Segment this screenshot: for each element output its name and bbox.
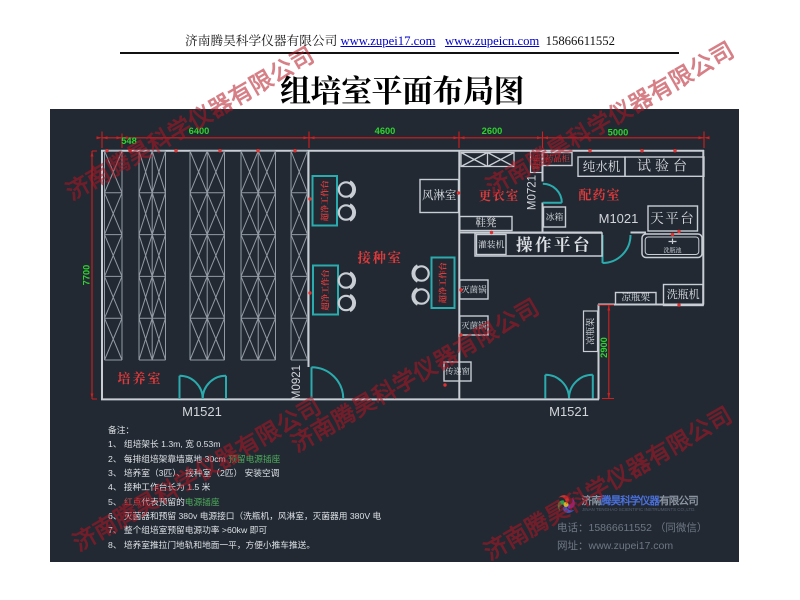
svg-text:操作平台: 操作平台: [516, 235, 592, 255]
svg-text:冰箱: 冰箱: [546, 211, 564, 222]
svg-text:M1521: M1521: [549, 404, 589, 419]
svg-text:M1021: M1021: [599, 211, 639, 226]
svg-text:风淋室: 风淋室: [422, 188, 457, 202]
svg-text:纯水机: 纯水机: [583, 159, 621, 174]
svg-text:M1521: M1521: [182, 404, 222, 419]
svg-text:超净工作台: 超净工作台: [320, 269, 330, 311]
svg-text:天平台: 天平台: [650, 211, 695, 226]
svg-text:2600: 2600: [482, 126, 503, 136]
svg-text:接种室: 接种室: [358, 250, 403, 266]
svg-text:7700: 7700: [82, 265, 92, 286]
svg-text:凉瓶架: 凉瓶架: [622, 292, 651, 304]
svg-text:4600: 4600: [375, 126, 396, 136]
svg-text:配药室: 配药室: [578, 188, 620, 203]
svg-text:灌装机: 灌装机: [478, 239, 505, 250]
svg-text:超净工作台: 超净工作台: [438, 261, 448, 303]
svg-text:2900: 2900: [599, 337, 609, 358]
svg-text:凉瓶架: 凉瓶架: [585, 318, 596, 345]
svg-text:洗瓶机: 洗瓶机: [667, 287, 700, 301]
svg-text:超净工作台: 超净工作台: [319, 179, 329, 221]
svg-text:灭菌锅: 灭菌锅: [461, 285, 487, 295]
svg-text:试验台: 试验台: [637, 159, 691, 175]
svg-text:洗瓶池: 洗瓶池: [663, 247, 681, 255]
svg-text:培养室: 培养室: [117, 371, 162, 386]
svg-text:鞋凳: 鞋凳: [475, 216, 496, 229]
